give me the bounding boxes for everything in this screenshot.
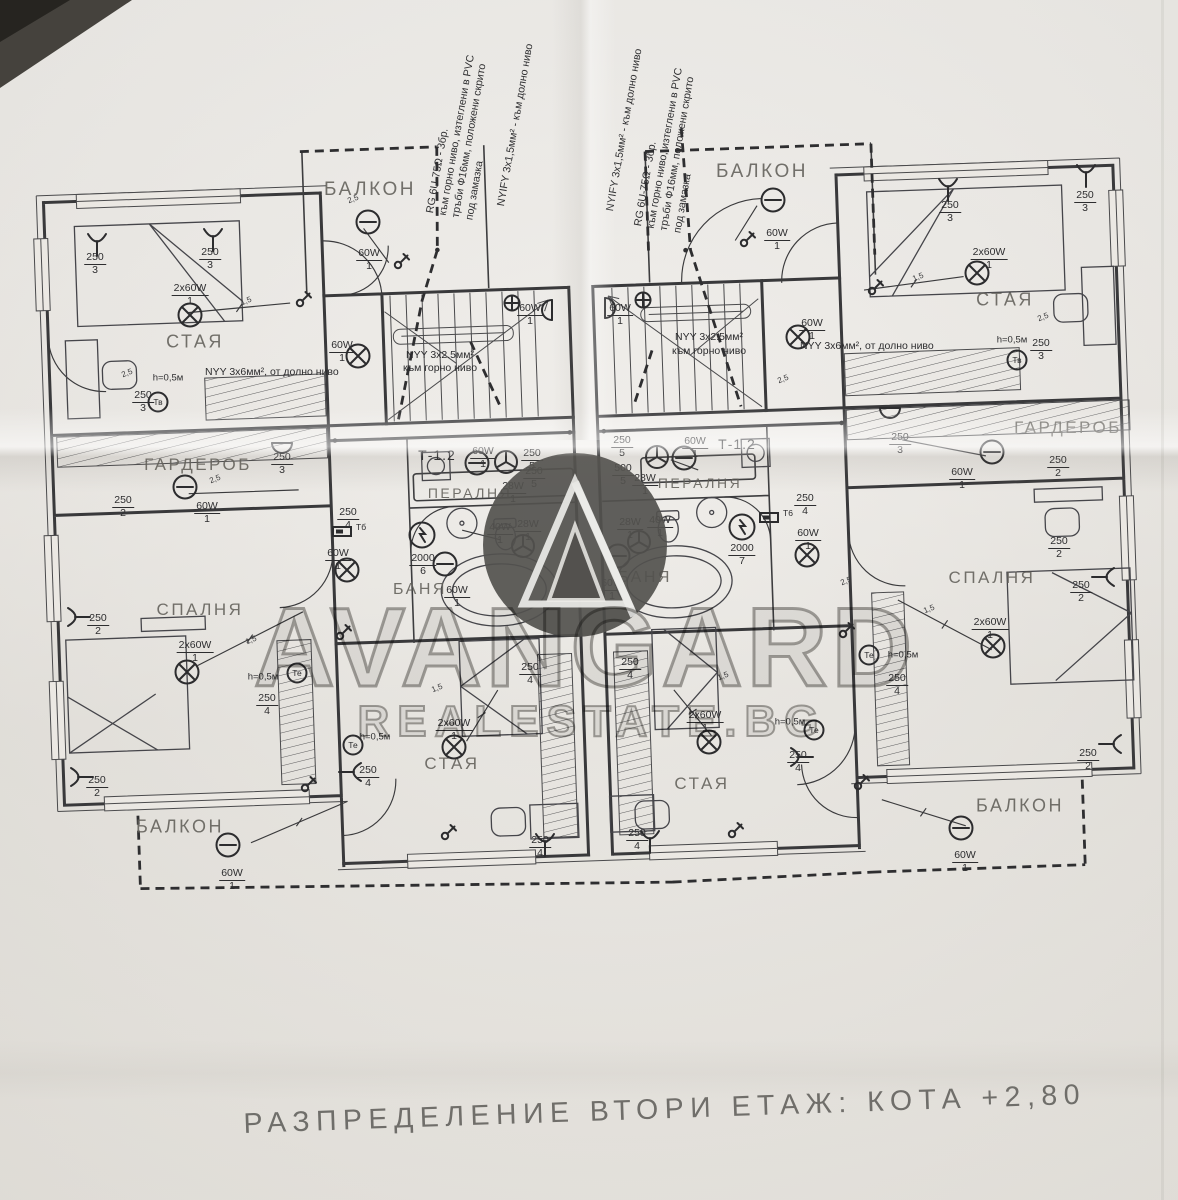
fixture-rating-label: 2502	[112, 495, 134, 519]
ceiling-lamp-icon	[978, 631, 1008, 661]
ceiling-lamp-icon	[172, 657, 202, 687]
bed-lamp-icon	[62, 604, 92, 630]
wall-lamp-icon	[430, 549, 460, 579]
paper-crease-bottom	[0, 1040, 1178, 1100]
cable-type-note: NYY 3x6мм², от долно ниво	[205, 366, 339, 378]
fixture-rating-top: 60W	[795, 528, 821, 541]
wall-lamp-icon	[213, 830, 243, 860]
low-current-outlet-icon: Тв	[1004, 347, 1030, 373]
fixture-rating-top: 60W	[194, 501, 220, 514]
cable-type-note: към горно ниво	[403, 362, 477, 374]
fixture-rating-top: 250	[1074, 190, 1096, 203]
fixture-circuit-number: 2	[1048, 549, 1070, 561]
fixture-rating-top: 60W	[219, 868, 245, 881]
svg-text:Тв: Тв	[1012, 355, 1022, 365]
fixture-rating-top: 2x60W	[172, 283, 209, 296]
paper-edge-right	[1161, 0, 1164, 1200]
bed-lamp-icon	[637, 825, 663, 855]
floor-plan-photo: БАЛКОНБАЛКОНСТАЯСТАЯГАРДЕРОБГАРДЕРОБПЕРА…	[0, 0, 1178, 1200]
mounting-height-label: h=0,5м	[153, 373, 184, 384]
cable-type-note: към горно ниво	[672, 345, 746, 357]
light-switch-icon	[860, 279, 884, 303]
fixture-rating-top: 250	[1048, 536, 1070, 549]
bed-lamp-icon	[337, 759, 367, 785]
room-label: СТАЯ	[976, 290, 1034, 311]
room-label: СПАЛНЯ	[157, 600, 244, 620]
bed-lamp-icon	[1073, 159, 1099, 189]
fixture-rating-top: 60W	[764, 228, 790, 241]
room-label: СТАЯ	[674, 774, 729, 794]
terminal-box-icon: Т6	[759, 507, 807, 527]
room-label: БАЛКОН	[976, 796, 1064, 817]
light-switch-icon	[293, 776, 317, 800]
wire-section-mark: 1,5	[922, 603, 936, 616]
cable-type-note: NYY 3x6мм², от долно ниво	[800, 340, 934, 352]
fixture-circuit-number: 1	[764, 241, 790, 253]
bed-lamp-icon	[1097, 731, 1127, 757]
fixture-rating-top: 250	[337, 507, 359, 520]
ceiling-lamp-icon	[175, 300, 205, 330]
cable-type-note: NYY 3x2.5мм²	[675, 331, 743, 343]
wire-section-mark: 2,5	[1036, 311, 1050, 324]
fixture-circuit-number: 2	[1070, 593, 1092, 605]
fixture-rating-label: 2503	[939, 200, 961, 224]
ceiling-lamp-icon	[962, 258, 992, 288]
fixture-rating-top: 60W	[356, 248, 382, 261]
cable-type-note: NYY 3x2.5мм²	[406, 349, 474, 361]
fixture-circuit-number: 7	[728, 556, 755, 568]
ceiling-lamp-icon	[783, 322, 813, 352]
bed-lamp-icon	[935, 173, 961, 203]
watermark-site: REALESTATE.BG	[357, 700, 826, 744]
fixture-circuit-number: 1	[952, 863, 978, 875]
room-label: БАЛКОН	[136, 817, 224, 838]
wall-lamp-icon	[946, 813, 976, 843]
fixture-circuit-number: 1	[219, 881, 245, 893]
fixture-circuit-number: 3	[84, 265, 106, 277]
light-switch-icon	[386, 253, 410, 277]
ceiling-lamp-icon	[792, 540, 822, 570]
paper-crease-vertical	[552, 0, 616, 440]
fixture-rating-top: 250	[794, 493, 816, 506]
watermark-brand: AVANGARD	[254, 592, 917, 704]
bed-lamp-icon	[84, 228, 110, 258]
boiler-outlet-icon	[727, 512, 757, 542]
light-switch-icon	[846, 774, 870, 798]
bed-lamp-icon	[65, 764, 95, 790]
bed-lamp-icon	[200, 223, 226, 253]
wire-section-mark: 1,5	[911, 271, 925, 284]
room-label: БАЛКОН	[716, 161, 808, 183]
fixture-circuit-number: 1	[356, 261, 382, 273]
light-switch-icon	[288, 291, 312, 315]
fixture-rating-label: 2502	[1077, 748, 1099, 772]
fixture-circuit-number: 2	[1077, 761, 1099, 773]
fixture-rating-top: 250	[1077, 748, 1099, 761]
fixture-rating-label: 2503	[1030, 338, 1052, 362]
bed-lamp-icon	[1090, 564, 1120, 590]
room-label: СПАЛНЯ	[949, 568, 1036, 588]
ceiling-lamp-icon	[343, 341, 373, 371]
ceiling-lamp-icon	[332, 555, 362, 585]
bed-lamp-icon	[532, 828, 558, 858]
fixture-rating-top: 60W	[952, 850, 978, 863]
svg-text:Тб: Тб	[356, 522, 366, 532]
fixture-circuit-number: 2	[112, 508, 134, 520]
fixture-rating-label: 60W1	[219, 868, 245, 892]
svg-text:Тв: Тв	[153, 397, 163, 407]
fixture-rating-label: 60W1	[764, 228, 790, 252]
wall-lamp-icon	[353, 207, 383, 237]
junction-box-icon	[503, 294, 521, 312]
light-switch-icon	[433, 824, 457, 848]
fixture-circuit-number: 3	[1074, 203, 1096, 215]
wire-section-mark: 2,5	[120, 367, 134, 380]
fixture-circuit-number: 3	[939, 213, 961, 225]
fixture-rating-label: 60W1	[356, 248, 382, 272]
light-switch-icon	[732, 231, 756, 255]
fixture-circuit-number: 1	[194, 514, 220, 526]
fixture-rating-label: 60W1	[952, 850, 978, 874]
fixture-circuit-number: 3	[1030, 351, 1052, 363]
wire-section-mark: 1,5	[239, 295, 253, 308]
bed-lamp-icon	[785, 744, 815, 770]
room-label: СТАЯ	[166, 332, 224, 353]
wall-lamp-icon	[758, 185, 788, 215]
fixture-rating-top: 250	[1070, 580, 1092, 593]
fixture-rating-top: 2000	[728, 543, 755, 556]
fixture-rating-label: 2502	[1048, 536, 1070, 560]
boiler-outlet-icon	[407, 520, 437, 550]
fixture-rating-label: 2503	[1074, 190, 1096, 214]
svg-text:Т6: Т6	[783, 508, 793, 518]
light-switch-icon	[720, 822, 744, 846]
fixture-rating-top: 2x60W	[177, 640, 214, 653]
room-label: БАЛКОН	[324, 179, 416, 201]
fixture-rating-label: 20007	[728, 543, 755, 567]
fixture-rating-top: 2x60W	[972, 617, 1009, 630]
fixture-circuit-number: 3	[199, 260, 221, 272]
fixture-rating-top: 250	[1030, 338, 1052, 351]
fixture-rating-top: 250	[112, 495, 134, 508]
fixture-rating-label: 2502	[1070, 580, 1092, 604]
junction-box-icon	[634, 291, 652, 309]
wire-section-mark: 2,5	[776, 373, 790, 386]
terminal-box-icon: Тб	[332, 521, 380, 541]
fixture-rating-label: 60W1	[194, 501, 220, 525]
mounting-height-label: h=0,5м	[997, 335, 1028, 346]
